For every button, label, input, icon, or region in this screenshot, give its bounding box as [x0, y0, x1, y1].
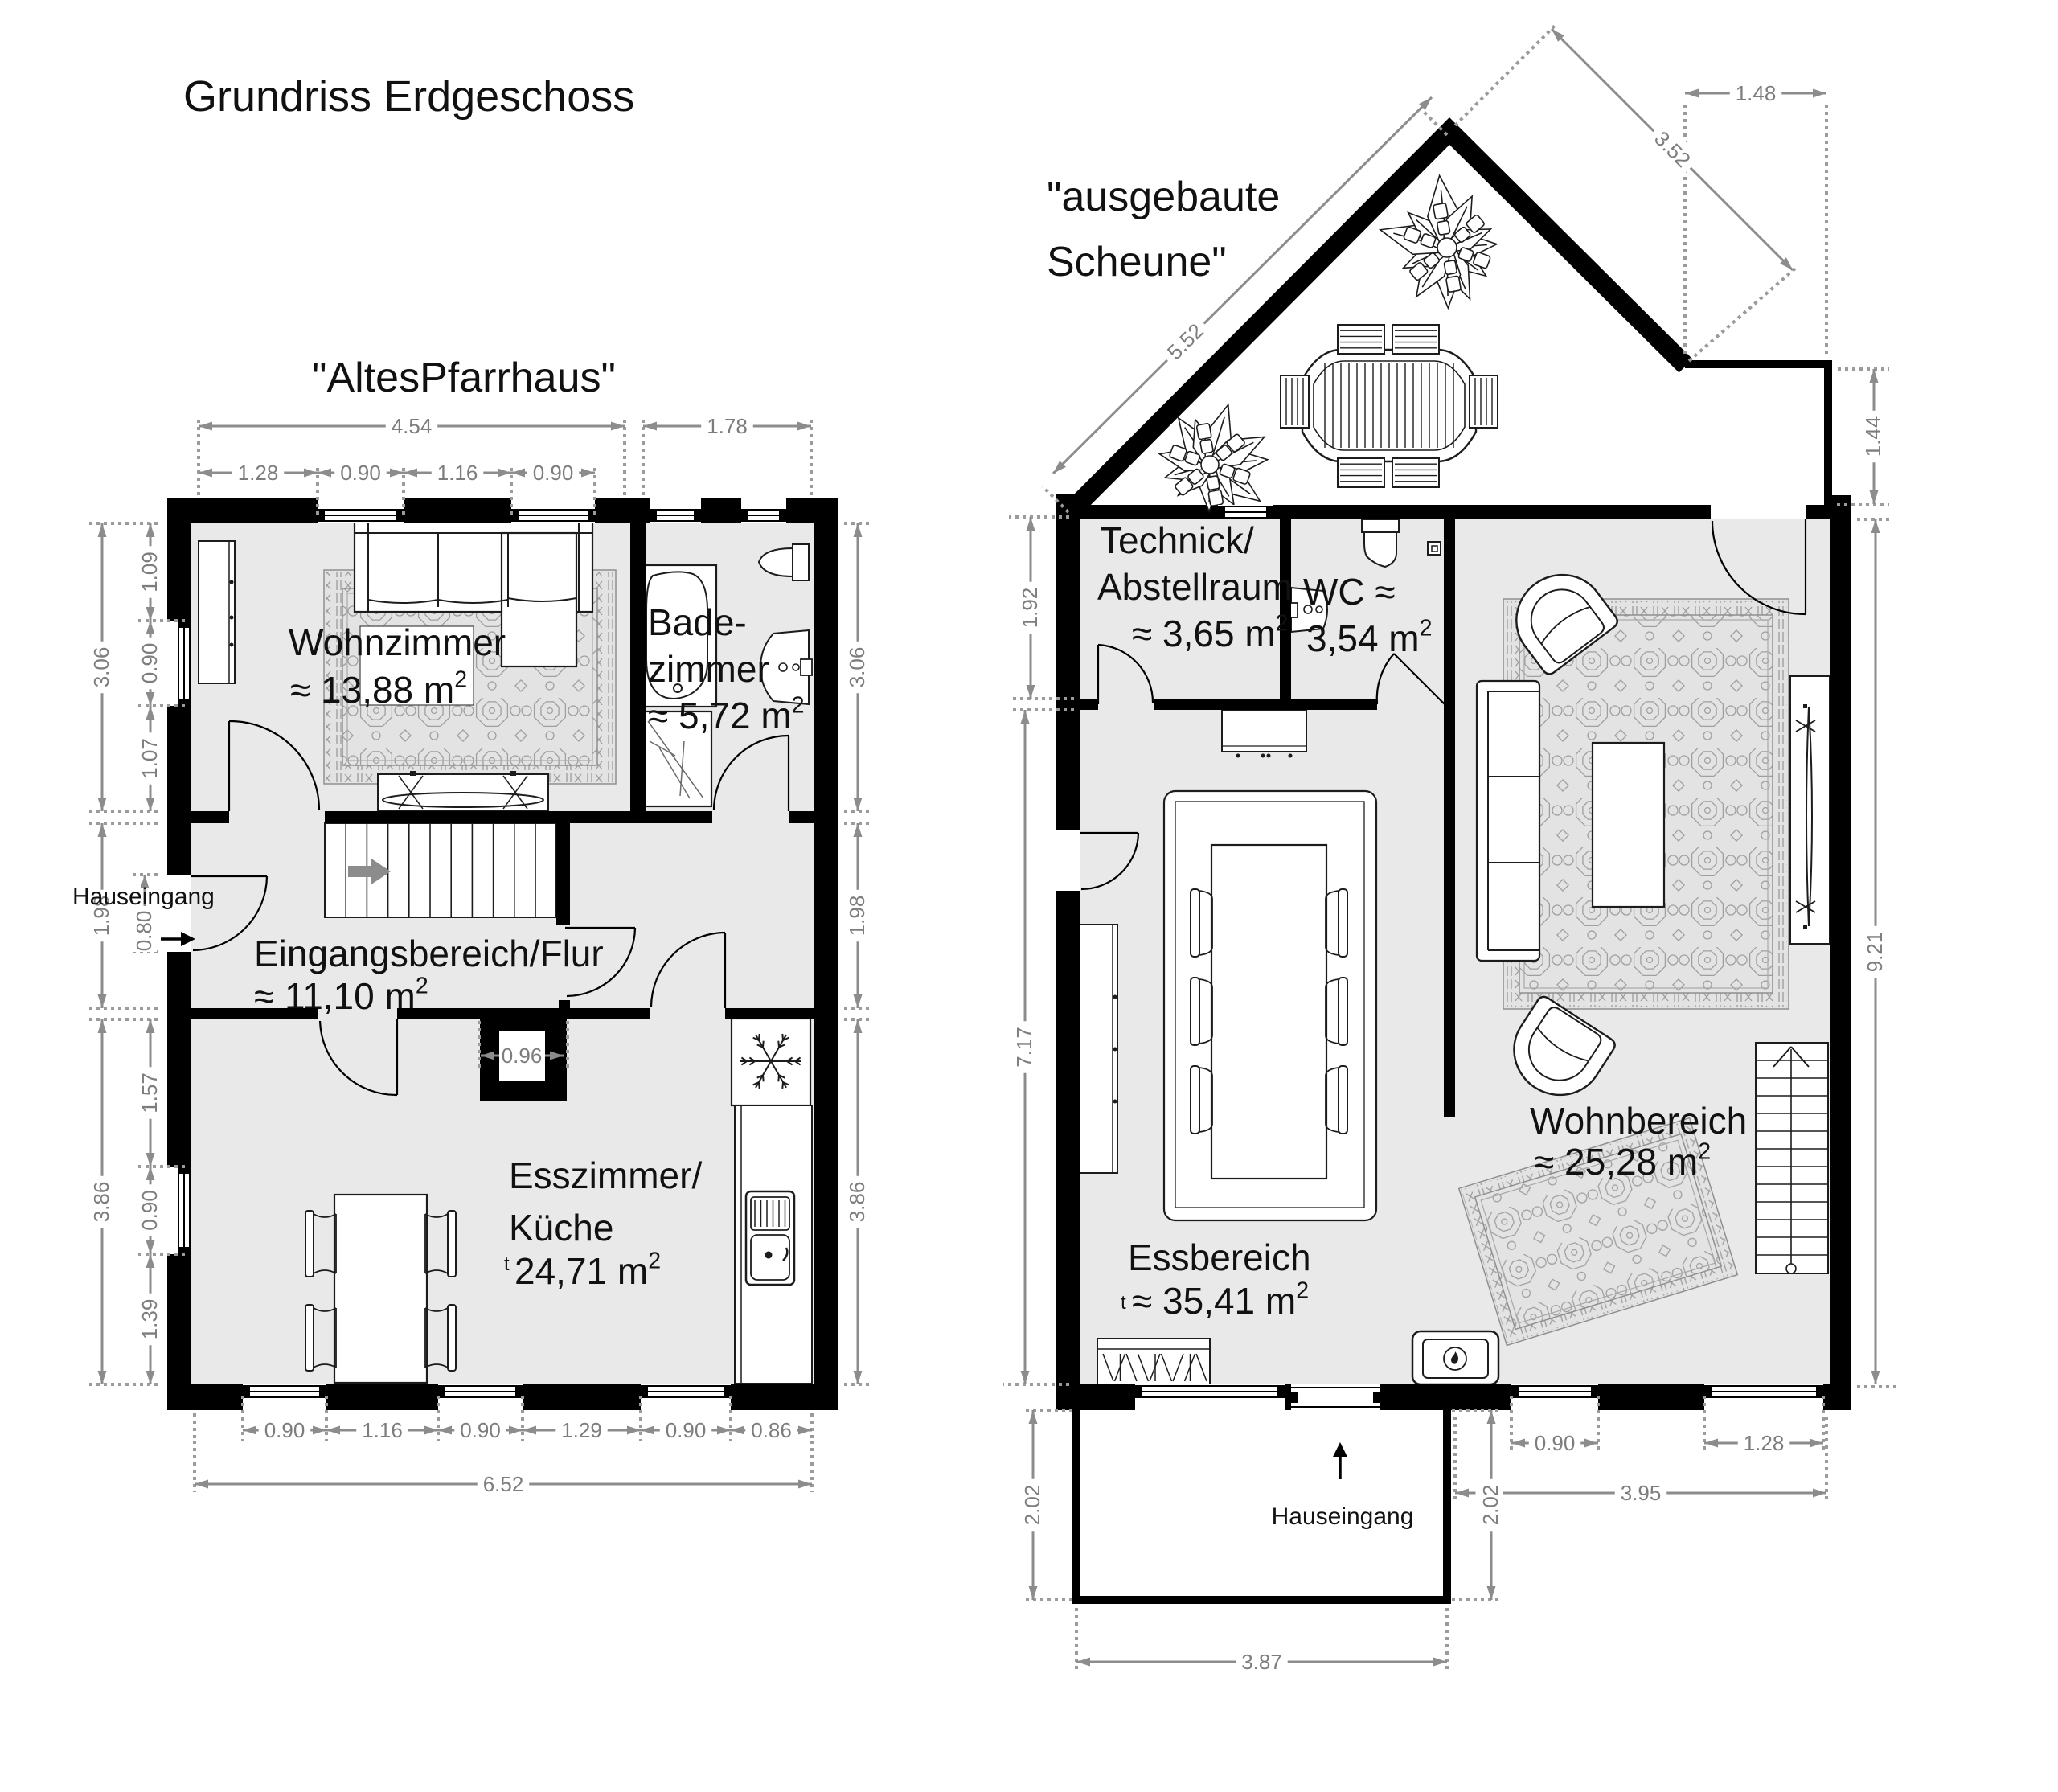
svg-text:3.86: 3.86 [845, 1182, 869, 1223]
svg-text:1.16: 1.16 [437, 461, 478, 485]
svg-text:3.06: 3.06 [89, 647, 113, 688]
svg-text:0.86: 0.86 [751, 1418, 792, 1442]
svg-text:1.39: 1.39 [137, 1299, 162, 1340]
svg-text:zimmer: zimmer [648, 648, 769, 690]
svg-text:1.78: 1.78 [707, 414, 748, 438]
svg-text:1.09: 1.09 [137, 552, 162, 593]
svg-text:9.21: 9.21 [1863, 932, 1887, 973]
svg-text:Küche: Küche [509, 1207, 613, 1249]
svg-text:4.54: 4.54 [392, 414, 433, 438]
svg-text:2.02: 2.02 [1020, 1485, 1044, 1526]
svg-text:Essbereich: Essbereich [1128, 1236, 1311, 1278]
svg-text:1.92: 1.92 [1018, 588, 1042, 629]
svg-text:3.86: 3.86 [89, 1182, 113, 1223]
svg-text:≈ 13,88 m2: ≈ 13,88 m2 [290, 667, 467, 711]
svg-text:1.44: 1.44 [1861, 416, 1885, 457]
svg-text:1.07: 1.07 [137, 738, 162, 779]
svg-text:≈ 35,41 m2: ≈ 35,41 m2 [1132, 1278, 1309, 1322]
svg-text:6.52: 6.52 [483, 1472, 524, 1496]
svg-text:3.06: 3.06 [845, 647, 869, 688]
svg-text:1.28: 1.28 [1744, 1431, 1785, 1455]
svg-text:Hauseingang: Hauseingang [1272, 1503, 1414, 1530]
svg-text:3.95: 3.95 [1621, 1481, 1662, 1505]
svg-text:3.87: 3.87 [1241, 1650, 1282, 1674]
svg-text:1.98: 1.98 [845, 896, 869, 937]
svg-text:2.02: 2.02 [1478, 1485, 1503, 1526]
svg-text:0.90: 0.90 [137, 643, 162, 684]
svg-text:Esszimmer/: Esszimmer/ [509, 1154, 702, 1196]
svg-text:Eingangsbereich/Flur: Eingangsbereich/Flur [254, 933, 604, 974]
svg-text:0.90: 0.90 [533, 461, 574, 485]
svg-text:3,54 m2: 3,54 m2 [1306, 616, 1433, 659]
svg-text:Technick/: Technick/ [1100, 519, 1254, 561]
svg-text:t: t [1121, 1292, 1126, 1314]
svg-text:0.90: 0.90 [460, 1418, 501, 1442]
svg-text:WC ≈: WC ≈ [1303, 571, 1396, 613]
svg-text:0.90: 0.90 [264, 1418, 305, 1442]
svg-text:1.48: 1.48 [1736, 81, 1777, 105]
svg-text:Abstellraum: Abstellraum [1097, 566, 1293, 608]
svg-text:1.57: 1.57 [137, 1072, 162, 1113]
svg-text:0.90: 0.90 [340, 461, 381, 485]
svg-text:Bade-: Bade- [648, 601, 747, 643]
svg-text:≈ 25,28 m2: ≈ 25,28 m2 [1534, 1139, 1711, 1183]
svg-text:1.29: 1.29 [561, 1418, 602, 1442]
svg-text:7.17: 7.17 [1012, 1027, 1036, 1068]
svg-text:0.80: 0.80 [132, 911, 156, 952]
svg-text:24,71 m2: 24,71 m2 [514, 1249, 661, 1292]
svg-text:Grundriss Erdgeschoss: Grundriss Erdgeschoss [183, 72, 634, 121]
svg-text:0.90: 0.90 [137, 1190, 162, 1231]
svg-text:≈ 3,65 m2: ≈ 3,65 m2 [1132, 611, 1289, 654]
svg-text:0.90: 0.90 [666, 1418, 707, 1442]
svg-text:1.16: 1.16 [362, 1418, 403, 1442]
svg-text:Wohnbereich: Wohnbereich [1530, 1100, 1747, 1142]
svg-text:Hauseingang: Hauseingang [72, 884, 215, 910]
svg-text:≈ 5,72 m2: ≈ 5,72 m2 [648, 693, 805, 736]
svg-text:Wohnzimmer: Wohnzimmer [289, 621, 506, 663]
svg-text:0.90: 0.90 [1535, 1431, 1576, 1455]
svg-text:0.96: 0.96 [502, 1044, 543, 1068]
svg-text:Scheune": Scheune" [1047, 239, 1227, 285]
svg-text:"AltesPfarrhaus": "AltesPfarrhaus" [312, 355, 616, 401]
svg-text:"ausgebaute: "ausgebaute [1047, 174, 1280, 220]
svg-text:t: t [504, 1253, 510, 1275]
svg-text:1.28: 1.28 [238, 461, 279, 485]
